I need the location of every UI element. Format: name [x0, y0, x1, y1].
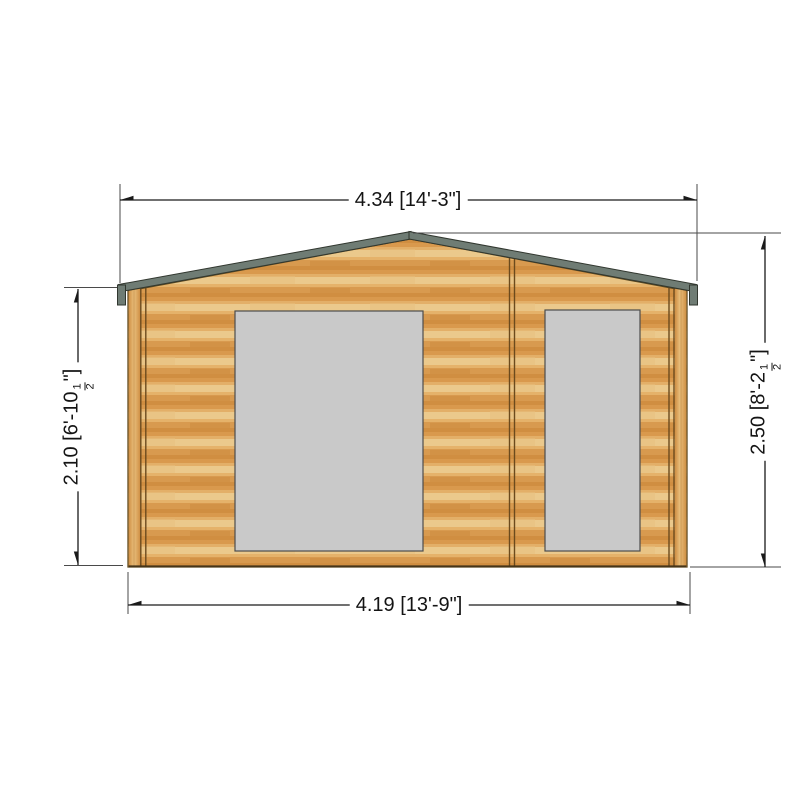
arrowhead: [74, 552, 78, 566]
fraction: 12: [73, 382, 97, 390]
small-window: [545, 310, 640, 551]
dim-text: 2.50 [8'-2: [748, 372, 770, 455]
cabin-elevation-svg: [0, 0, 800, 800]
arrowhead: [684, 196, 698, 200]
dim-text: "]: [61, 369, 83, 382]
dim-label-base-width: 4.19 [13'-9"]: [350, 593, 469, 617]
roof-barge-end-right: [690, 285, 698, 305]
dim-text: 4.19 [13'-9"]: [356, 594, 463, 616]
large-window: [235, 311, 423, 551]
dim-text: "]: [748, 349, 770, 362]
fraction: 12: [760, 363, 784, 371]
dim-text: 4.34 [14'-3"]: [355, 189, 462, 211]
arrowhead: [74, 289, 78, 303]
dim-label-wall-height: 2.10 [6'-1012"]: [60, 363, 97, 492]
elevation-drawing-canvas: 4.34 [14'-3"] 4.19 [13'-9"] 2.10 [6'-101…: [0, 0, 800, 800]
dim-text: 2.10 [6'-10: [61, 391, 83, 485]
cabin-body: [118, 232, 698, 571]
dim-label-ridge-height: 2.50 [8'-212"]: [747, 343, 784, 461]
arrowhead: [677, 601, 691, 605]
arrowhead: [761, 554, 765, 568]
roof-barge-end-left: [118, 285, 126, 305]
dim-label-overall-width: 4.34 [14'-3"]: [349, 188, 468, 212]
